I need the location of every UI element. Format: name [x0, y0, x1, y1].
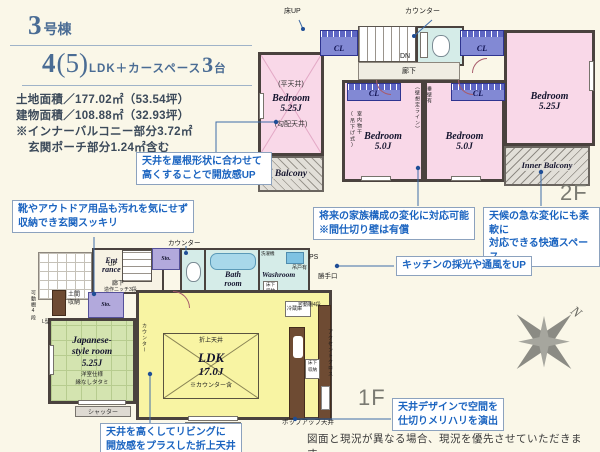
building-area: 建物面積／108.88㎡（32.93坪）	[16, 107, 189, 123]
washroom-label: Washroom	[262, 271, 295, 280]
counter-label-ldk: カウンター	[141, 323, 148, 353]
balcony-label: Balcony	[273, 169, 309, 180]
divider	[22, 85, 252, 86]
ldk-size: 17.0J	[199, 366, 224, 379]
ldk-room: カウンター 折上天井 LDK 17.0J ※カウンター含 冷蔵庫	[136, 290, 332, 420]
land-area: 土地面積／177.02㎡（53.54坪）	[16, 91, 189, 107]
plan-car-count: 3	[202, 52, 213, 78]
storage-2: Sto.	[88, 292, 124, 318]
bedroom-a-name: Bedroom	[272, 93, 310, 105]
building-suffix: 号棟	[44, 19, 72, 39]
callout-entrance-storage: 靴やアウトドア用品も汚れを気にせず 収納でき玄関スッキリ	[12, 200, 194, 233]
closet-label: CL	[334, 44, 344, 55]
hallway-2f: 廊下	[358, 62, 460, 80]
bedroom-d-name: Bedroom	[531, 91, 569, 103]
sloped-ceiling-label: (勾配天井)	[275, 119, 308, 129]
toilet-icon	[432, 35, 450, 57]
underfloor-storage-kitchen: 床下 収納	[305, 359, 320, 379]
floor-up-label: 床UP	[284, 6, 301, 16]
closet-2f-1: CL	[320, 30, 358, 56]
japanese-room-note-1: 洋室仕様	[81, 370, 103, 378]
bedroom-b: CL 室内物干 (吊下げ式) Bedroom 5.0J	[342, 80, 424, 182]
window	[259, 93, 264, 119]
doma-storage-label: 土間 収納	[68, 292, 80, 308]
building-title: 3 号棟	[28, 10, 72, 41]
stairs-up-label: UP	[108, 262, 116, 268]
toilet-counter	[420, 32, 428, 58]
bathroom-label: Bath room	[206, 270, 260, 288]
ps-label: PS	[309, 254, 318, 261]
coffered-label: 折上天井	[197, 335, 225, 344]
floor2-label: 2F	[560, 180, 588, 206]
area-note-1: ※インナーバルコニー部分3.72㎡	[16, 123, 193, 139]
japanese-room-name-1: Japanese-	[72, 336, 112, 347]
storage-label: Sto.	[101, 302, 111, 309]
hanging-cabinet-label: 吊戸有	[292, 264, 307, 271]
wall-assumed-line-label: （壁想定ライン）	[414, 84, 421, 132]
closet-label: CL	[369, 89, 379, 100]
hanging-wall-label: 垂壁有	[426, 86, 433, 104]
bedroom-b-size: 5.0J	[375, 142, 392, 153]
bedroom-d: Bedroom 5.25J	[504, 30, 595, 146]
callout-kitchen-light: キッチンの採光や通風をUP	[396, 256, 532, 276]
toilet-2f	[416, 26, 464, 66]
callout-coffered-ceiling: 天井を高くしてリビングに 開放感をプラスした折上天井	[100, 423, 242, 452]
toilet-icon	[186, 262, 201, 282]
l-type-label: L型	[42, 318, 50, 325]
stairs-dn-label: DN	[400, 53, 410, 60]
door-arc	[173, 291, 190, 308]
compass-north-label: N	[567, 302, 585, 321]
backdoor-label: 勝手口	[318, 270, 338, 280]
storage-1: Sto.	[152, 248, 180, 270]
bedroom-c-name: Bedroom	[446, 131, 484, 143]
closet-label: CL	[473, 89, 483, 100]
floor1-plan: Ent rance UP 廊下 造作ニッチ3段 Sto. Bath room 洗…	[30, 248, 375, 420]
floorplan-page: 3 号棟 4 (5) LDK＋カースペース 3 台 土地面積／177.02㎡（5…	[0, 0, 600, 452]
ldk-name: LDK	[198, 351, 224, 366]
stove-icon	[321, 386, 330, 410]
japanese-room-name-2: style room	[72, 347, 112, 358]
flat-ceiling-label: (平天井)	[278, 79, 304, 89]
kitchen-island	[289, 327, 305, 419]
bedroom-b-name: Bedroom	[364, 131, 402, 143]
plan-car-suffix: 台	[214, 60, 226, 76]
accent-cloth-label: アクセントクロス	[327, 329, 334, 377]
japanese-room: Japanese- style room 5.25J 洋室仕様 縁なしタタミ	[48, 318, 136, 404]
closet-2f-2: CL	[460, 30, 504, 56]
counter-label-1f-top: カウンター	[168, 237, 201, 247]
window	[78, 400, 126, 405]
japanese-room-note-2: 縁なしタタミ	[75, 378, 108, 386]
bedroom-a-size: 5.25J	[280, 104, 301, 115]
shelf-label-doma: 可動棚4段	[30, 290, 37, 321]
window	[188, 416, 238, 421]
window	[49, 345, 54, 375]
bedroom-c: CL Bedroom 5.0J	[424, 80, 505, 182]
storage-label: Sto.	[161, 256, 171, 263]
niche-label: 造作ニッチ3段	[104, 286, 137, 293]
bedroom-d-size: 5.25J	[539, 102, 560, 113]
window	[589, 61, 594, 91]
plan-ldk-label: LDK＋カースペース	[89, 60, 201, 76]
kitchen-sink-icon	[293, 336, 303, 358]
indoor-drying-label: 室内物干 (吊下げ式)	[349, 111, 363, 149]
floor1-label: 1F	[358, 385, 386, 411]
plan-type: 4 (5) LDK＋カースペース 3 台	[42, 48, 226, 79]
footer-note: 図面と現況が異なる場合、現況を優先させていただきます。	[307, 431, 600, 452]
floor2-plan: (平天井) Bedroom 5.25J (勾配天井) Balcony CL DN…	[258, 22, 595, 192]
sink-icon	[286, 252, 304, 264]
divider	[10, 45, 252, 46]
window	[451, 176, 481, 181]
washer-label: 洗濯機	[261, 251, 275, 257]
closet-label: CL	[477, 44, 487, 55]
bathtub-icon	[210, 253, 256, 270]
shutter-1: シャッター	[75, 406, 131, 417]
compass-rose-icon: N	[498, 288, 590, 388]
window	[361, 176, 391, 181]
doma-shelf	[52, 290, 66, 316]
fridge-label: 冷蔵庫	[287, 305, 302, 312]
callout-partition-wall: 将来の家族構成の変化に対応可能 ※間仕切り壁は有償	[313, 207, 475, 240]
hallway-2f-label: 廊下	[402, 66, 416, 76]
closet-2f-3: CL	[347, 83, 401, 101]
inner-balcony-label: Inner Balcony	[520, 161, 575, 171]
bedroom-a: (平天井) Bedroom 5.25J (勾配天井)	[258, 52, 324, 156]
counter-label-2f: カウンター	[405, 6, 440, 16]
shutter-label: シャッター	[88, 407, 118, 416]
plan-rooms-alt: (5)	[57, 48, 88, 79]
stairs-up	[122, 250, 152, 282]
ldk-note: ※カウンター含	[190, 380, 232, 389]
japanese-room-size: 5.25J	[82, 358, 102, 368]
door-arc	[472, 58, 487, 73]
popup-ceiling-label: ポップアップ天井	[282, 416, 334, 426]
building-number: 3	[28, 10, 42, 41]
plan-rooms: 4	[42, 48, 56, 79]
compass: N	[498, 288, 590, 388]
bedroom-c-size: 5.0J	[456, 142, 473, 153]
callout-roof-ceiling: 天井を屋根形状に合わせて 高くすることで開放感UP	[136, 152, 272, 185]
callout-ceiling-design: 天井デザインで空間を 仕切りメリハリを演出	[392, 398, 504, 431]
